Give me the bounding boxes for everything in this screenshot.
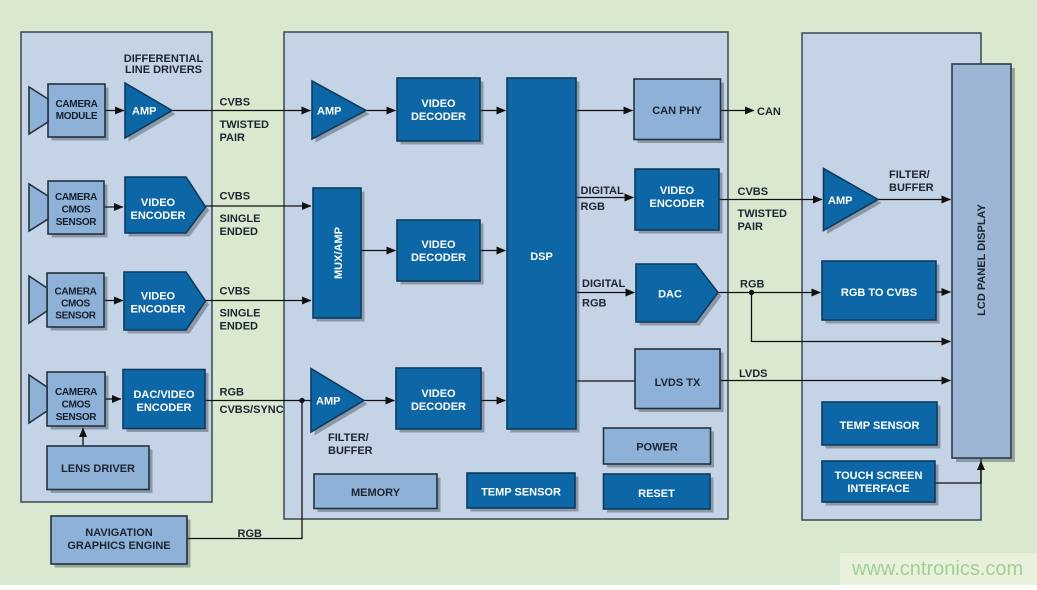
svg-text:CAMERA: CAMERA bbox=[55, 192, 97, 203]
svg-text:DECODER: DECODER bbox=[411, 401, 466, 413]
svg-text:RGB: RGB bbox=[582, 298, 607, 310]
svg-text:TWISTED: TWISTED bbox=[738, 208, 788, 220]
svg-text:VIDEO: VIDEO bbox=[421, 388, 456, 400]
svg-text:CVBS: CVBS bbox=[220, 191, 251, 203]
svg-text:PAIR: PAIR bbox=[738, 221, 764, 233]
svg-text:MEMORY: MEMORY bbox=[351, 487, 401, 499]
svg-text:RGB TO CVBS: RGB TO CVBS bbox=[841, 287, 917, 299]
svg-text:CMOS: CMOS bbox=[61, 299, 90, 310]
svg-text:BUFFER: BUFFER bbox=[328, 445, 373, 457]
svg-text:CAMERA: CAMERA bbox=[55, 387, 97, 398]
svg-text:SENSOR: SENSOR bbox=[56, 412, 98, 423]
svg-text:SINGLE: SINGLE bbox=[220, 308, 261, 320]
svg-text:DIGITAL: DIGITAL bbox=[582, 278, 625, 290]
svg-text:SINGLE: SINGLE bbox=[220, 213, 261, 225]
svg-text:RGB: RGB bbox=[220, 387, 245, 399]
svg-text:ENCODER: ENCODER bbox=[136, 402, 191, 414]
svg-text:VIDEO: VIDEO bbox=[141, 197, 176, 209]
svg-text:CVBS: CVBS bbox=[220, 286, 251, 298]
svg-text:FILTER/: FILTER/ bbox=[889, 169, 930, 181]
svg-text:FILTER/: FILTER/ bbox=[328, 432, 369, 444]
svg-text:MUX/AMP: MUX/AMP bbox=[333, 227, 345, 279]
svg-text:DAC: DAC bbox=[658, 289, 682, 301]
svg-text:BUFFER: BUFFER bbox=[889, 182, 934, 194]
svg-text:DECODER: DECODER bbox=[411, 252, 466, 264]
svg-text:ENDED: ENDED bbox=[220, 226, 259, 238]
svg-text:CAN PHY: CAN PHY bbox=[652, 105, 702, 117]
svg-text:TWISTED: TWISTED bbox=[220, 119, 270, 131]
svg-text:POWER: POWER bbox=[636, 442, 678, 454]
svg-text:RGB: RGB bbox=[238, 528, 263, 540]
svg-text:LVDS TX: LVDS TX bbox=[655, 377, 701, 389]
svg-text:RGB: RGB bbox=[740, 279, 765, 291]
svg-text:LENS DRIVER: LENS DRIVER bbox=[61, 463, 135, 475]
svg-text:TEMP SENSOR: TEMP SENSOR bbox=[840, 420, 920, 432]
svg-text:NAVIGATION: NAVIGATION bbox=[85, 527, 152, 539]
svg-text:CVBS/SYNC: CVBS/SYNC bbox=[220, 404, 284, 416]
svg-text:DAC/VIDEO: DAC/VIDEO bbox=[133, 389, 195, 401]
svg-text:AMP: AMP bbox=[317, 106, 341, 118]
svg-text:MODULE: MODULE bbox=[56, 111, 98, 122]
svg-text:AMP: AMP bbox=[132, 106, 156, 118]
svg-text:VIDEO: VIDEO bbox=[660, 185, 695, 197]
svg-text:AMP: AMP bbox=[828, 195, 852, 207]
svg-text:DIGITAL: DIGITAL bbox=[581, 185, 624, 197]
svg-text:GRAPHICS ENGINE: GRAPHICS ENGINE bbox=[67, 540, 170, 552]
svg-text:VIDEO: VIDEO bbox=[141, 291, 176, 303]
svg-text:DECODER: DECODER bbox=[411, 111, 466, 123]
svg-text:RGB: RGB bbox=[581, 201, 606, 213]
svg-text:CAN: CAN bbox=[757, 106, 781, 118]
svg-text:VIDEO: VIDEO bbox=[421, 98, 456, 110]
svg-text:AMP: AMP bbox=[316, 396, 340, 408]
svg-text:DSP: DSP bbox=[530, 251, 553, 263]
svg-text:CAMERA: CAMERA bbox=[55, 99, 97, 110]
svg-text:TOUCH SCREEN: TOUCH SCREEN bbox=[835, 470, 923, 482]
svg-text:ENCODER: ENCODER bbox=[130, 304, 185, 316]
svg-text:LCD PANEL DISPLAY: LCD PANEL DISPLAY bbox=[976, 204, 988, 316]
svg-text:LVDS: LVDS bbox=[739, 368, 768, 380]
svg-text:CMOS: CMOS bbox=[62, 205, 91, 216]
svg-text:www.cntronics.com: www.cntronics.com bbox=[851, 558, 1023, 580]
svg-text:ENCODER: ENCODER bbox=[130, 210, 185, 222]
svg-text:SENSOR: SENSOR bbox=[56, 217, 98, 228]
svg-text:PAIR: PAIR bbox=[220, 132, 246, 144]
svg-text:CMOS: CMOS bbox=[62, 400, 91, 411]
svg-text:CVBS: CVBS bbox=[220, 97, 251, 109]
svg-text:LINE DRIVERS: LINE DRIVERS bbox=[125, 64, 202, 76]
svg-text:VIDEO: VIDEO bbox=[421, 239, 456, 251]
svg-text:RESET: RESET bbox=[638, 488, 675, 500]
svg-text:TEMP SENSOR: TEMP SENSOR bbox=[481, 487, 561, 499]
svg-text:CVBS: CVBS bbox=[738, 186, 769, 198]
svg-text:ENCODER: ENCODER bbox=[649, 198, 704, 210]
svg-text:ENDED: ENDED bbox=[220, 321, 259, 333]
svg-text:INTERFACE: INTERFACE bbox=[847, 483, 909, 495]
svg-text:CAMERA: CAMERA bbox=[54, 287, 96, 298]
svg-text:SENSOR: SENSOR bbox=[55, 311, 97, 322]
